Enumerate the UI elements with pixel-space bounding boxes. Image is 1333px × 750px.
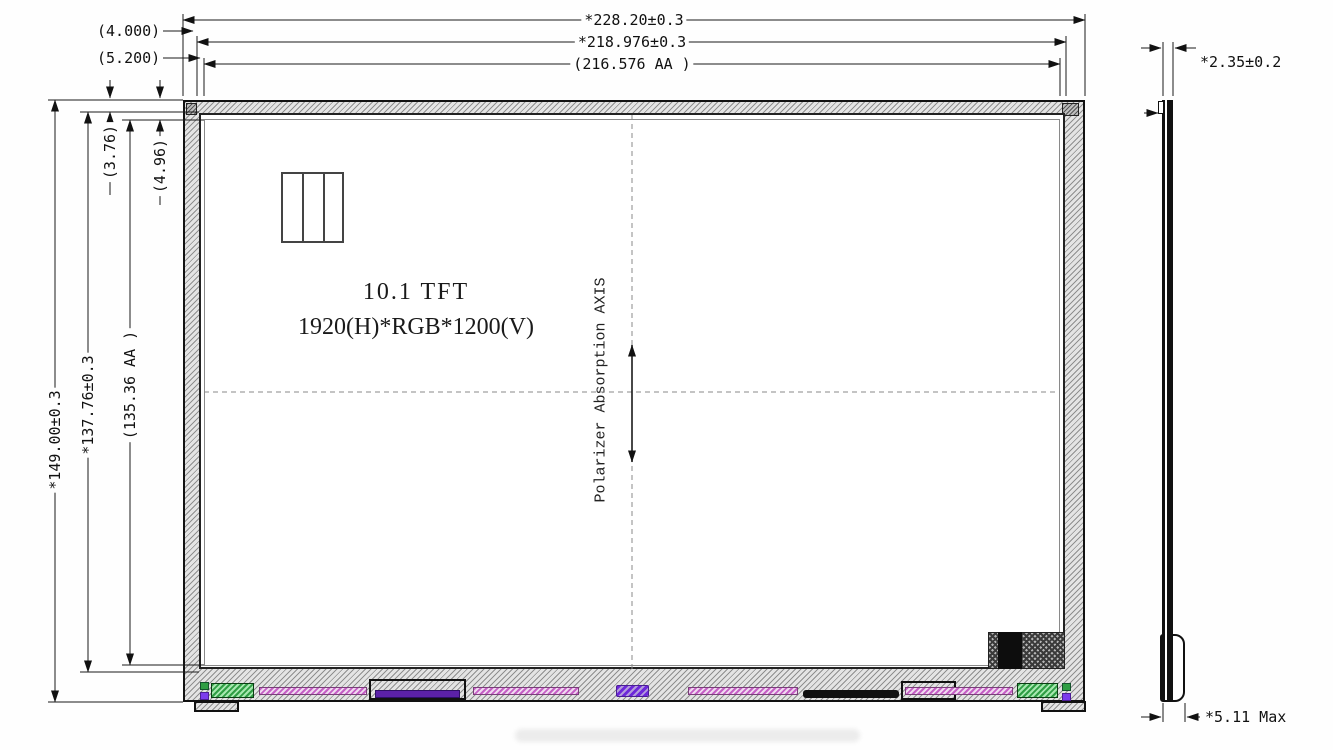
dim-active-height: (135.36 AA ) <box>121 328 139 442</box>
dim-max-thickness: *5.11 Max <box>1202 708 1289 726</box>
dim-bezel-width: *218.976±0.3 <box>575 33 689 51</box>
dim-bezel-left-offset: (4.000) <box>94 22 163 40</box>
dim-bezel-top-offset: (3.76) <box>101 122 119 182</box>
drawing-canvas: 10.1 TFT 1920(H)*RGB*1200(V) Polarizer A… <box>0 0 1333 750</box>
dim-active-width: (216.576 AA ) <box>570 55 693 73</box>
dim-active-left-offset: (5.200) <box>94 49 163 67</box>
dim-thickness: *2.35±0.2 <box>1197 53 1284 71</box>
dim-outline-width: *228.20±0.3 <box>581 11 686 29</box>
dimension-lines-layer <box>0 0 1333 750</box>
dim-outline-height: *149.00±0.3 <box>46 387 64 492</box>
dim-bezel-height: *137.76±0.3 <box>79 352 97 457</box>
dim-active-top-offset: (4.96) <box>151 136 169 196</box>
